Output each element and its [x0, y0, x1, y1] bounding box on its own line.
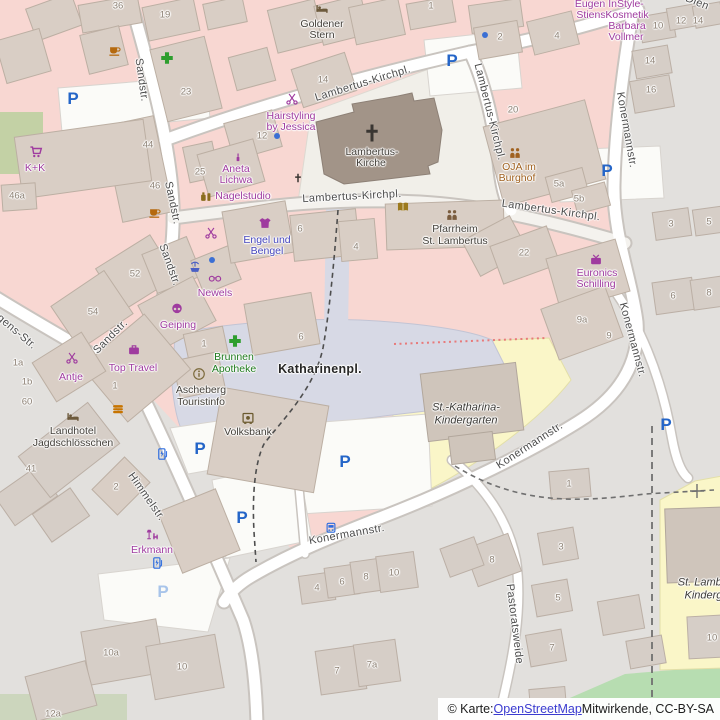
- poi-label: Lambertus-: [345, 147, 398, 158]
- poi-label: Touristinfo: [177, 397, 225, 408]
- street-label: Lambertus-Kirchpl.: [501, 199, 601, 224]
- house-number: 5a: [554, 179, 565, 189]
- house-number: 36: [113, 1, 124, 11]
- house-number: 5: [706, 217, 711, 227]
- poi-label: Brunnen: [214, 352, 254, 363]
- poi-label: Ascheberg: [176, 385, 226, 396]
- attribution-suffix: Mitwirkende, CC-BY-SA: [582, 702, 714, 716]
- map-labels-layer: Sandstr.Sandstr.Sandstr.Sandstr.Jürgens-…: [0, 0, 720, 720]
- poi-label: Kosmetik: [605, 10, 648, 21]
- parking-icon: P: [67, 89, 78, 109]
- house-number: 19: [160, 10, 171, 20]
- poi-label: Erkmann: [131, 545, 173, 556]
- house-number: 54: [88, 307, 99, 317]
- house-number: 16: [646, 85, 657, 95]
- house-number: 14: [645, 56, 656, 66]
- poi-label: Katharinenpl.: [278, 363, 362, 376]
- poi-label: Newels: [198, 288, 232, 299]
- bus-icon: [325, 522, 338, 535]
- house-number: 6: [339, 577, 344, 587]
- house-number: 6: [297, 224, 302, 234]
- travel-icon: [127, 343, 141, 357]
- poi-label: Nagelstudio: [215, 191, 270, 202]
- house-number: 10: [707, 633, 718, 643]
- poi-label: St.-Katharina-: [432, 403, 500, 414]
- poi-label: Kindergarten: [435, 416, 498, 427]
- house-number: 25: [195, 167, 206, 177]
- supermarket-icon: [29, 145, 43, 159]
- poi-label: Stiens: [576, 10, 605, 21]
- parking-icon: P: [660, 415, 671, 435]
- cosmetics-icon: [199, 189, 213, 203]
- electronics-icon: [589, 253, 603, 267]
- street-label: Konermannstr.: [614, 91, 638, 168]
- house-number: 52: [130, 269, 141, 279]
- hairdresser-icon: [65, 351, 79, 365]
- street-label: Lambertus-Kirchpl.: [302, 189, 402, 205]
- parking-icon: P: [601, 161, 612, 181]
- street-label: Sandstr.: [133, 58, 150, 103]
- house-number: 4: [353, 242, 358, 252]
- bakery-icon: [170, 301, 184, 315]
- community-icon: [508, 146, 522, 160]
- fastfood-icon: [111, 402, 125, 416]
- map-canvas[interactable]: Sandstr.Sandstr.Sandstr.Sandstr.Jürgens-…: [0, 0, 720, 720]
- house-number: 60: [22, 397, 33, 407]
- street-label: Jürgens-Str.: [0, 302, 38, 352]
- hotel-icon: [66, 410, 80, 424]
- street-label: Sandstr.: [162, 181, 182, 226]
- street-label: Lambertus-Kirchpl.: [472, 62, 507, 161]
- hairdresser-icon: [204, 226, 218, 240]
- house-number: 41: [26, 464, 37, 474]
- poi-label: by Jessica: [266, 122, 315, 133]
- community-icon: [445, 208, 459, 222]
- osm-link[interactable]: OpenStreetMap: [494, 702, 582, 716]
- house-number: 44: [143, 140, 154, 150]
- poi-label: Stern: [309, 30, 334, 41]
- house-number: 10: [653, 21, 664, 31]
- dot-icon: [209, 257, 216, 264]
- house-number: 23: [181, 87, 192, 97]
- poi-label: K+K: [25, 163, 45, 174]
- dot-icon: [274, 133, 281, 140]
- dot-icon: [482, 32, 489, 39]
- attribution-prefix: © Karte:: [447, 702, 493, 716]
- attribution-bar: © Karte: OpenStreetMap Mitwirkende, CC-B…: [438, 698, 720, 720]
- house-number: 10: [177, 662, 188, 672]
- poi-label: Kirche: [356, 158, 386, 169]
- poi-label: Goldener: [300, 19, 343, 30]
- house-number: 8: [706, 288, 711, 298]
- house-number: 4: [554, 31, 559, 41]
- info-icon: [192, 367, 206, 381]
- house-number: 5b: [574, 194, 585, 204]
- house-number: 2: [497, 32, 502, 42]
- street-label: Himmelstr.: [125, 471, 166, 523]
- house-number: 3: [668, 219, 673, 229]
- house-number: 1b: [22, 377, 33, 387]
- poi-label: Landhotel: [50, 426, 96, 437]
- street-label: Pastoratsweide: [504, 583, 525, 665]
- bank-icon: [241, 411, 255, 425]
- optician-icon: [208, 271, 222, 285]
- house-number: 20: [508, 105, 519, 115]
- hotel-icon: [315, 2, 329, 16]
- pharmacy-icon: [160, 51, 175, 66]
- poi-label: OJA im: [502, 162, 536, 173]
- house-number: 12: [676, 16, 687, 26]
- poi-label: Schilling: [576, 279, 615, 290]
- house-number: 9a: [577, 315, 588, 325]
- poi-label: Geiping: [160, 320, 196, 331]
- book-icon: [396, 200, 410, 214]
- street-label: Konermannstr.: [308, 523, 385, 547]
- parking-icon: P: [446, 51, 457, 71]
- house-number: 12a: [45, 709, 61, 719]
- pharmacy-icon: [228, 334, 243, 349]
- house-number: 7: [334, 666, 339, 676]
- beauty-icon: [233, 152, 244, 163]
- cafe-icon: [148, 205, 162, 219]
- charging-icon: [157, 448, 170, 461]
- poi-label: St. Lambertus: [422, 236, 487, 247]
- house-number: 46a: [9, 191, 25, 201]
- house-number: 1: [112, 381, 117, 391]
- furniture-icon: [145, 528, 159, 542]
- street-label: Dien: [684, 0, 711, 13]
- poi-label: Euronics: [577, 268, 618, 279]
- house-number: 9: [606, 331, 611, 341]
- poi-label: Engel und: [243, 235, 290, 246]
- house-number: 22: [519, 248, 530, 258]
- house-number: 1: [566, 479, 571, 489]
- house-number: 2: [113, 482, 118, 492]
- poi-label: Barbara: [608, 21, 645, 32]
- poi-label: Aneta: [222, 164, 249, 175]
- charging-icon: [152, 557, 165, 570]
- poi-label: Kindergarten: [685, 591, 720, 602]
- house-number: 3: [558, 542, 563, 552]
- poi-label: Bengel: [251, 246, 284, 257]
- house-number: 4: [314, 583, 319, 593]
- fountain-icon: [188, 260, 202, 274]
- parking-icon: P: [339, 452, 350, 472]
- parking-icon: P: [157, 582, 168, 602]
- poi-label: Hairstyling: [266, 111, 315, 122]
- house-number: 6: [298, 332, 303, 342]
- house-number: 8: [363, 572, 368, 582]
- cafe-icon: [108, 43, 122, 57]
- street-label: Sandstr.: [92, 318, 131, 357]
- house-number: 1: [201, 339, 206, 349]
- poi-label: Vollmer: [608, 32, 643, 43]
- house-number: 8: [489, 555, 494, 565]
- poi-label: Volksbank: [224, 427, 272, 438]
- house-number: 10a: [103, 648, 119, 658]
- poi-label: Jagdschlösschen: [33, 438, 114, 449]
- street-label: Sandstr.: [156, 243, 181, 288]
- house-number: 5: [555, 593, 560, 603]
- poi-label: Lichwa: [220, 175, 253, 186]
- house-number: 1a: [13, 358, 24, 368]
- hairdresser-icon: [285, 92, 299, 106]
- house-number: 14: [318, 75, 329, 85]
- church-icon: [293, 173, 303, 183]
- house-number: 10: [389, 568, 400, 578]
- poi-label: Burghof: [499, 173, 536, 184]
- house-number: 14: [693, 16, 704, 26]
- house-number: 46: [150, 181, 161, 191]
- house-number: 1: [428, 1, 433, 11]
- house-number: 7a: [367, 660, 378, 670]
- street-label: Konermannstr.: [617, 302, 647, 379]
- parking-icon: P: [236, 508, 247, 528]
- poi-label: Apotheke: [212, 364, 256, 375]
- poi-label: St. Lambertus: [678, 578, 720, 589]
- clothes-icon: [258, 216, 272, 230]
- poi-label: Antje: [59, 372, 83, 383]
- house-number: 6: [670, 291, 675, 301]
- parking-icon: P: [194, 439, 205, 459]
- poi-label: Pfarrheim: [432, 224, 478, 235]
- house-number: 7: [549, 643, 554, 653]
- poi-label: Top Travel: [109, 363, 157, 374]
- church-icon: [362, 123, 382, 143]
- street-label: Konermannstr.: [495, 420, 565, 471]
